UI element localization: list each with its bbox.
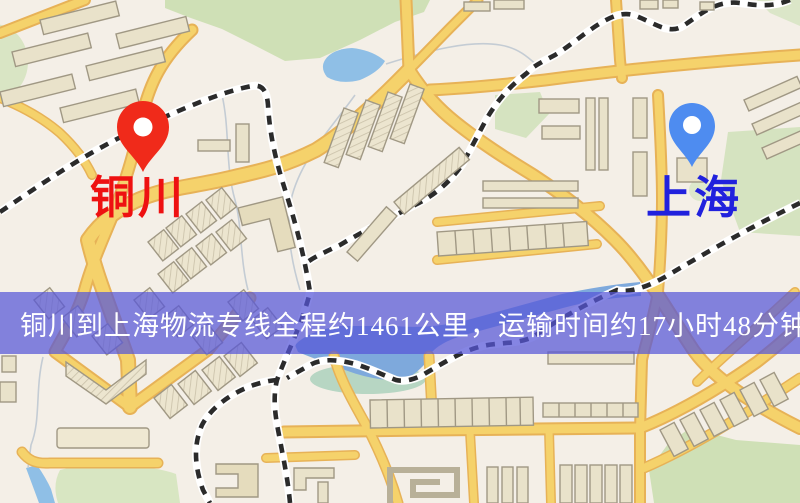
route-info-banner: 铜川到上海物流专线全程约1461公里，运输时间约17小时48分钟.	[0, 292, 800, 354]
destination-city-label: 上海	[646, 176, 742, 221]
map-background	[0, 0, 800, 503]
route-info-text: 铜川到上海物流专线全程约1461公里，运输时间约17小时48分钟.	[0, 304, 800, 343]
origin-city-label: 铜川	[90, 176, 186, 221]
map-view: 铜川 上海 铜川到上海物流专线全程约1461公里，运输时间约17小时48分钟.	[0, 0, 800, 503]
